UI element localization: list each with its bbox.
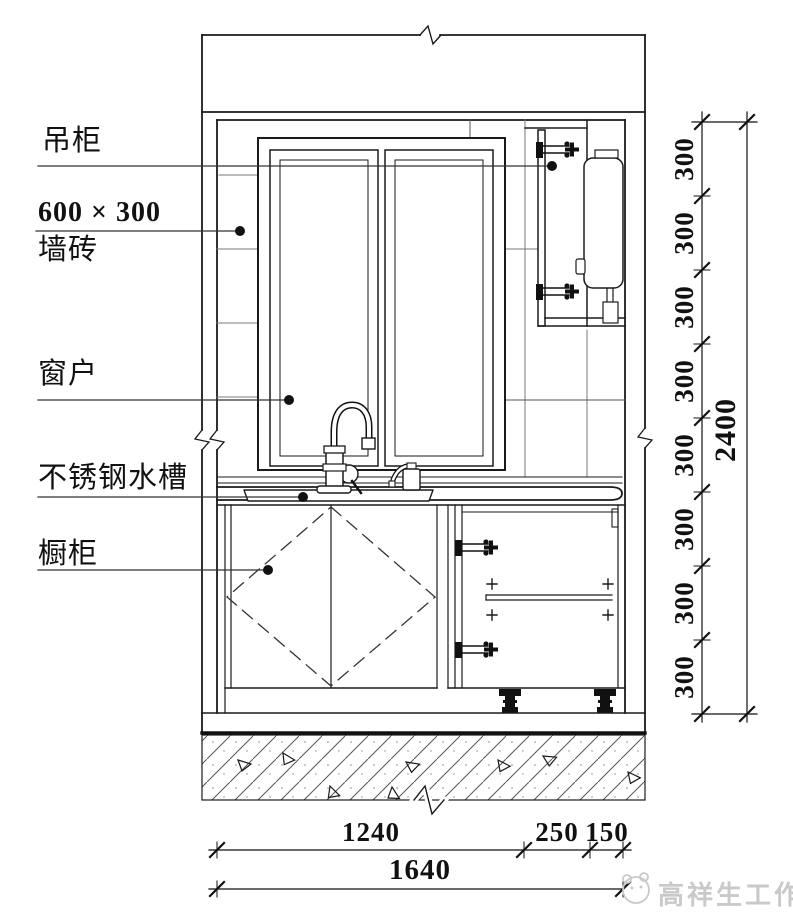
- label-base-cabinet: 橱柜: [38, 538, 98, 570]
- dim-300-1: 300: [670, 122, 698, 196]
- dim-150: 150: [577, 818, 637, 846]
- dim-2400: 2400: [712, 370, 740, 490]
- faucet-spout-tip: [362, 438, 375, 449]
- window-frame: [258, 138, 505, 470]
- leader-dot: [235, 226, 245, 236]
- dim-300-3: 300: [670, 270, 698, 344]
- base-cabinet-drawers: [448, 505, 625, 688]
- dim-300-8: 300: [670, 640, 698, 714]
- leader-dot: [284, 395, 294, 405]
- water-heater-vent: [595, 150, 618, 158]
- dim-300-2: 300: [670, 196, 698, 270]
- dim-300-6: 300: [670, 492, 698, 566]
- dim-300-4: 300: [670, 344, 698, 418]
- dim-1240: 1240: [321, 818, 421, 846]
- label-wall-tile: 墙砖: [38, 234, 98, 266]
- label-wall-tile-size: 600 × 300: [38, 197, 161, 229]
- studio-logo-icon: [623, 873, 649, 903]
- water-heater: [576, 150, 623, 323]
- break-symbol-right-wall: [638, 428, 652, 448]
- studio-watermark: 高祥生工作室: [658, 875, 793, 912]
- label-window: 窗户: [38, 358, 98, 390]
- break-symbol-top: [420, 26, 441, 44]
- floor-slab: [202, 713, 645, 814]
- label-hanging-cabinet: 吊柜: [42, 125, 102, 157]
- leader-dot: [263, 565, 273, 575]
- kitchen-elevation-drawing: 吊柜 600 × 300 墙砖 窗户 不锈钢水槽 橱柜 300 300 300 …: [0, 0, 793, 924]
- wall-tile-joints: [217, 120, 625, 477]
- faucet-base: [317, 486, 351, 493]
- wall-outline: [195, 26, 652, 733]
- water-heater-knob: [576, 259, 585, 274]
- faucet: [317, 405, 375, 493]
- soap-dispenser: [389, 463, 420, 490]
- water-heater-pipe: [603, 302, 618, 323]
- leader-dot: [298, 492, 308, 502]
- base-cabinet-sink: [217, 505, 625, 713]
- dim-300-5: 300: [670, 418, 698, 492]
- dim-1640: 1640: [370, 856, 470, 884]
- leader-dot: [547, 161, 557, 171]
- label-sink: 不锈钢水槽: [38, 462, 188, 494]
- break-symbol-left-wall: [195, 430, 209, 450]
- dim-300-7: 300: [670, 566, 698, 640]
